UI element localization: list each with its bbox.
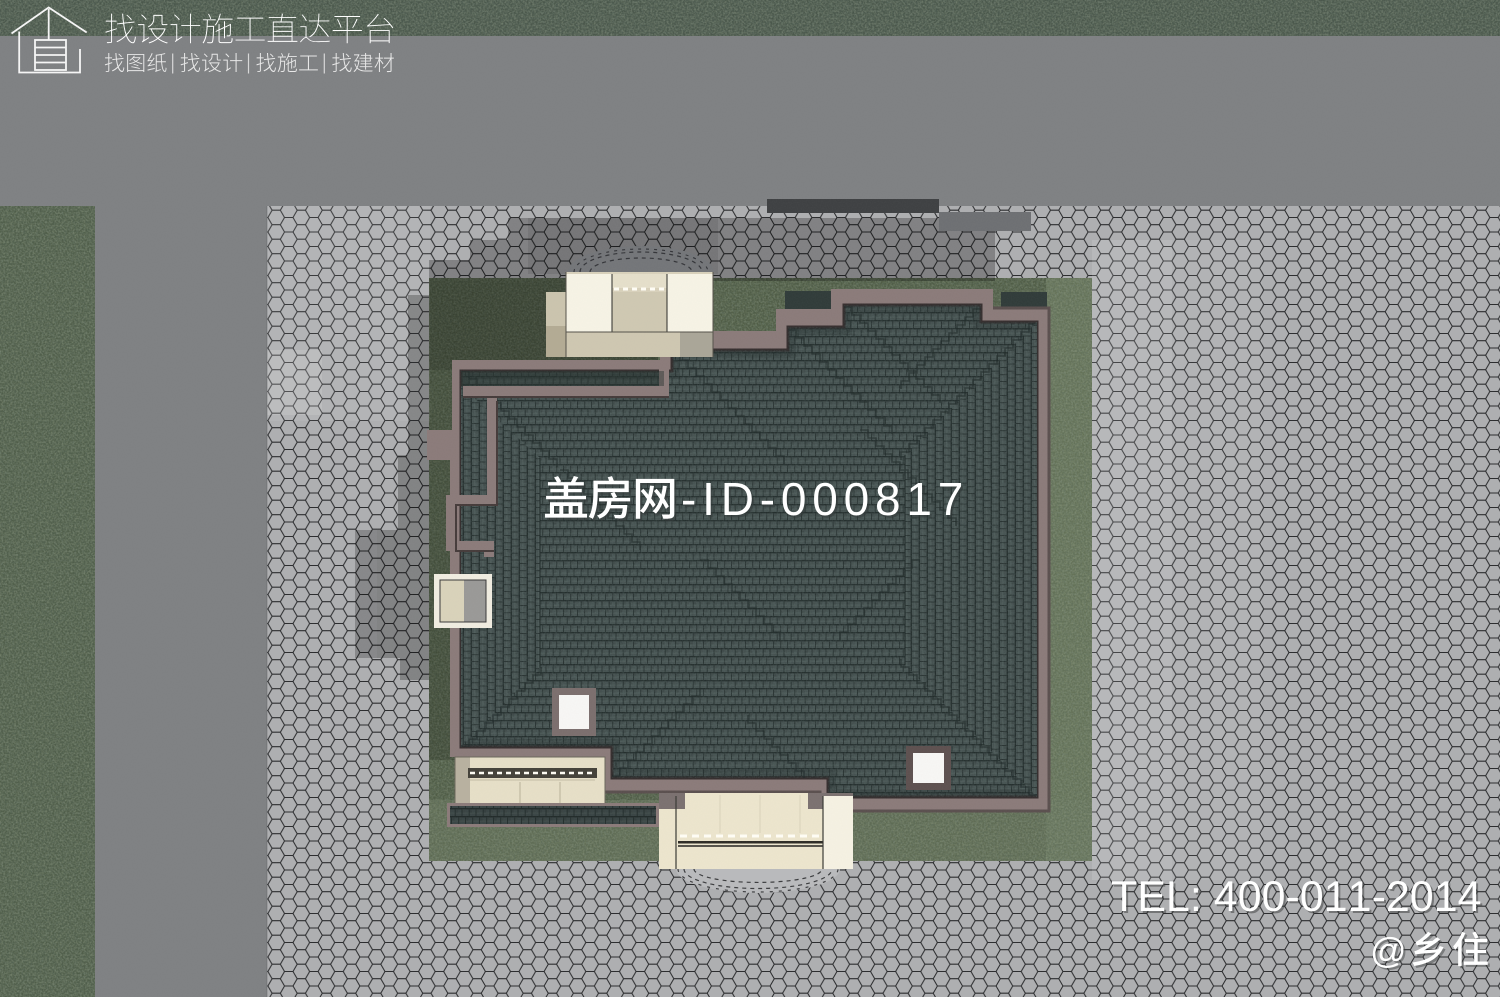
svg-text:-ID-000817: -ID-000817 [681,473,969,525]
